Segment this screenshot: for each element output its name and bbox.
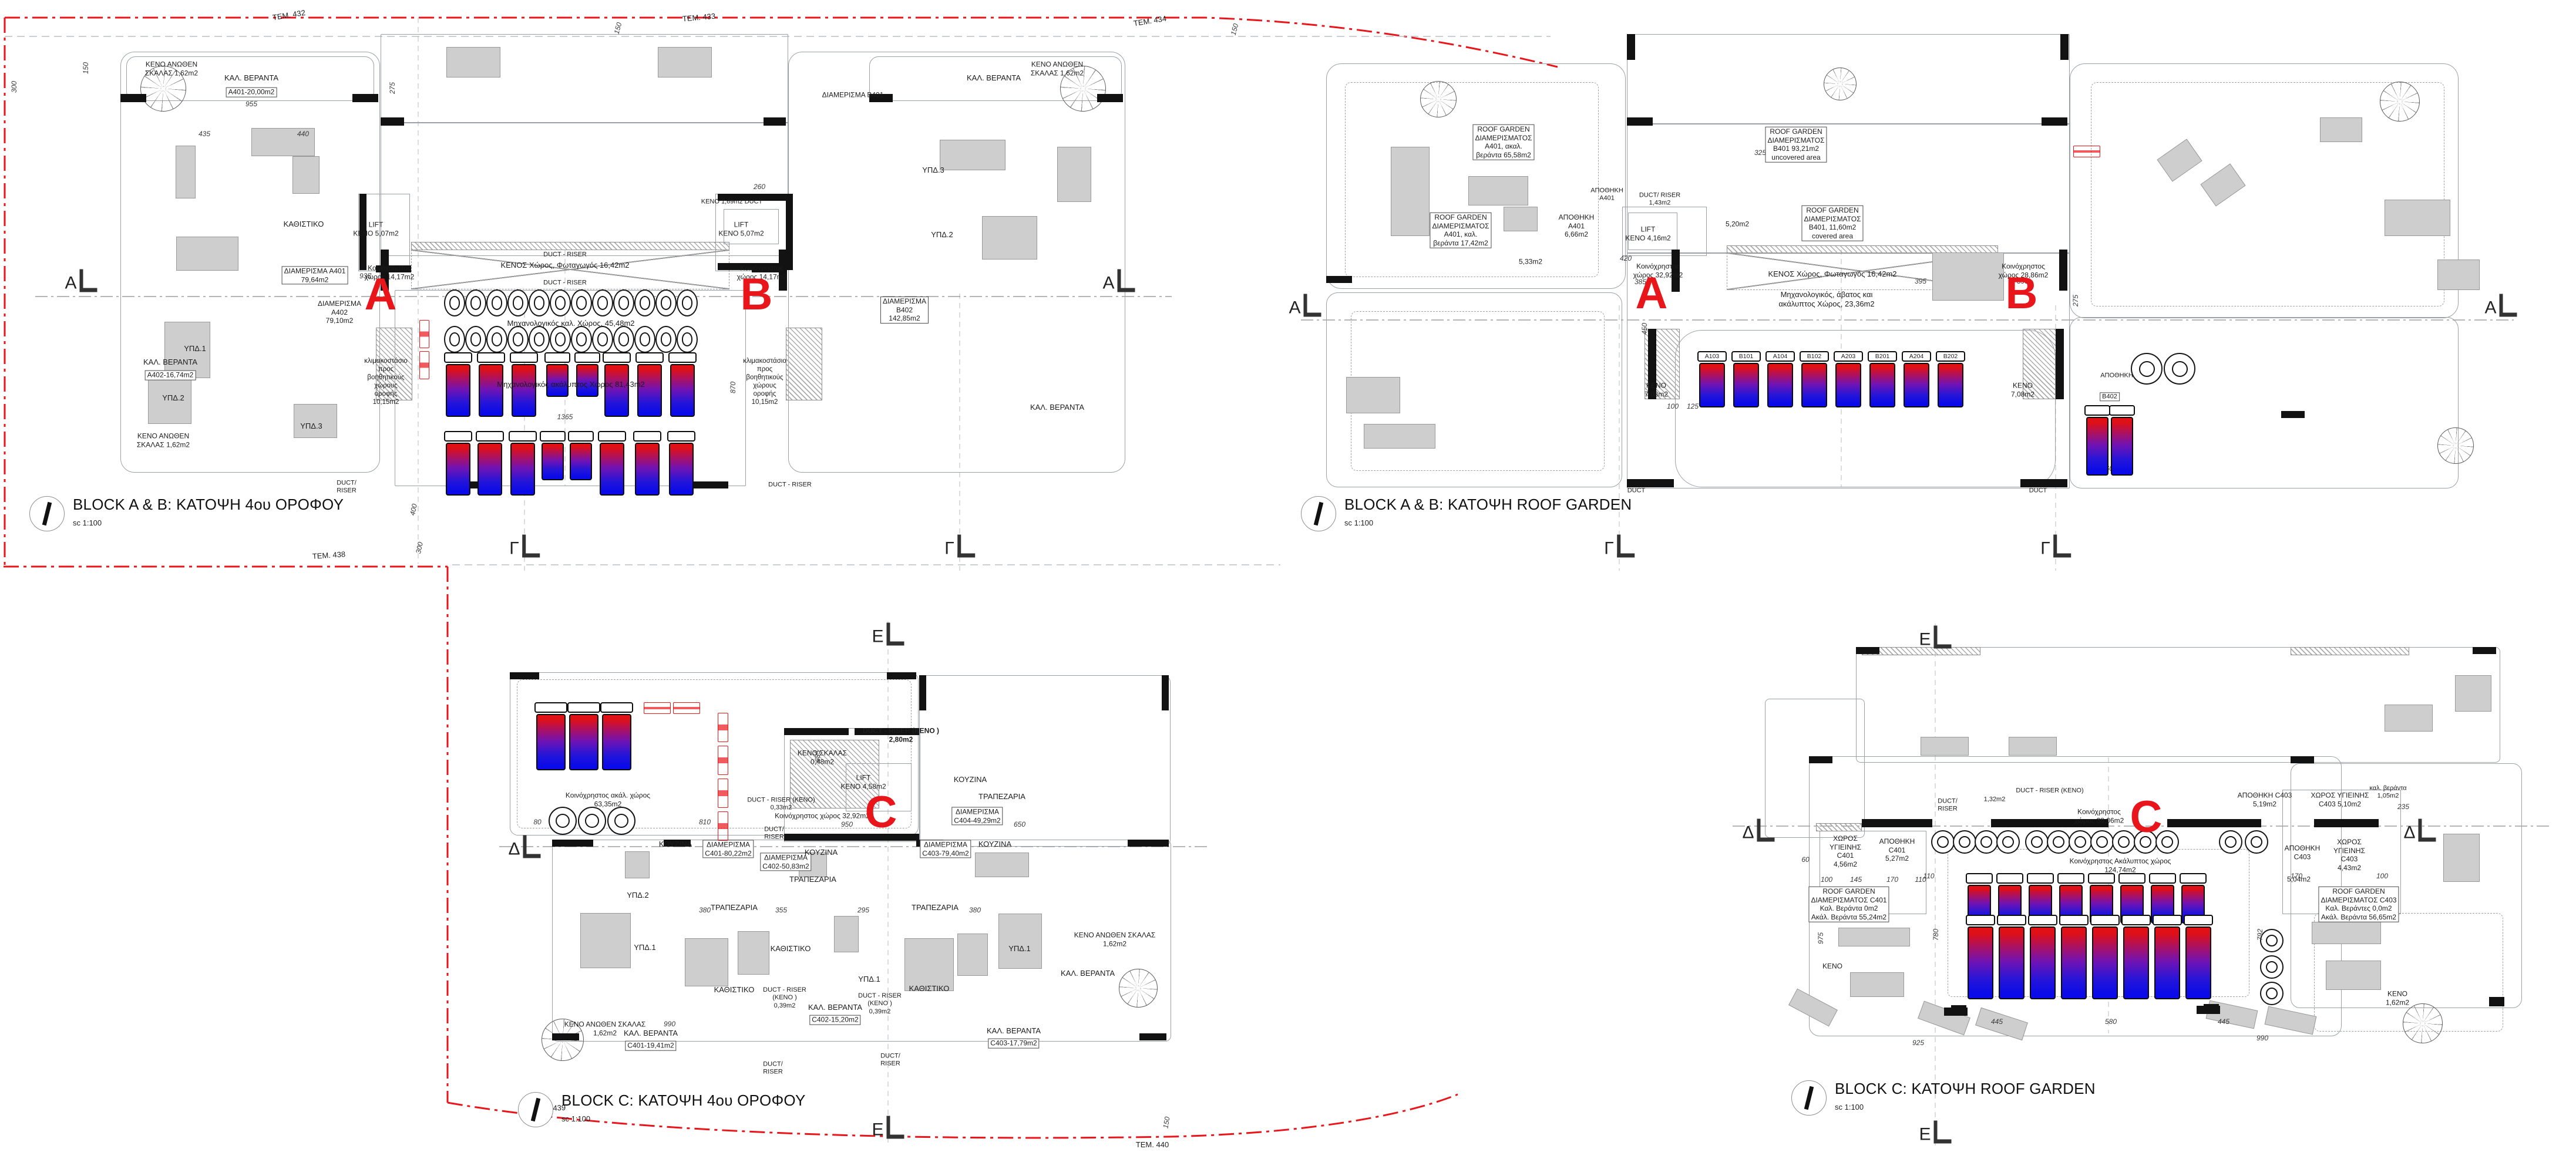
plan-label: ΚΕΝΟ ΑΝΩΘΕΝ ΣΚΑΛΑΣ 1,62m2 <box>1074 931 1156 948</box>
collector-header <box>476 431 504 442</box>
plan-label: ΔΙΑΜΕΡΙΣΜΑ C404-49,29m2 <box>951 807 1003 825</box>
dimension-label: 150 <box>82 62 90 74</box>
plan-label: ROOF GARDEN ΔΙΑΜΕΡΙΣΜΑΤΟΣ A401, καλ. βερ… <box>1430 213 1491 248</box>
plan-scale: sc 1:100 <box>561 1114 806 1123</box>
collector-header <box>633 431 661 442</box>
vent-circle-icon <box>634 289 655 316</box>
vent-circle-icon <box>677 326 698 353</box>
section-marker: Γ <box>1604 535 1635 558</box>
plan-label: ΔΙΑΜΕΡΙΣΜΑ C401-80,22m2 <box>702 840 754 858</box>
grid-letter: C <box>2130 795 2163 840</box>
wall-segment <box>786 194 793 270</box>
plan-label: DUCT/ RISER <box>763 1061 783 1077</box>
section-marker-icon <box>1757 819 1775 842</box>
dimension-label: 60 <box>1801 855 1809 864</box>
vent-inner-icon <box>618 332 630 346</box>
vent-inner-icon <box>1937 836 1949 848</box>
vent-inner-icon <box>2074 836 2087 848</box>
section-marker-letter: Ε <box>1919 1126 1931 1144</box>
plan-label: κλιμακοστάσιο προς βοηθητικούς χώρους ορ… <box>364 357 408 406</box>
furniture <box>1921 737 1969 756</box>
solar-collector <box>576 352 598 397</box>
section-marker-icon <box>2500 294 2517 317</box>
collector-header <box>2057 873 2084 884</box>
hatched-wall <box>411 242 729 250</box>
vent-inner-icon <box>534 332 545 346</box>
collector-panel <box>637 364 662 417</box>
spiral-stair-icon <box>1420 81 1457 117</box>
collector-header <box>574 352 600 363</box>
solar-collector <box>510 431 535 496</box>
vent-circle-icon <box>507 289 529 316</box>
plan-label: ROOF GARDEN ΔΙΑΜΕΡΙΣΜΑΤΟΣ B401, 11,60m2 … <box>1801 205 1863 241</box>
collector-header: A104 <box>1765 351 1795 362</box>
plan-scale: sc 1:100 <box>1835 1103 2096 1111</box>
section-marker-icon <box>1934 1121 1952 1144</box>
dimension-label: 950 <box>841 820 853 828</box>
collector-header <box>567 702 600 713</box>
plan-label: ΚΑΛ. ΒΕΡΑΝΤΑ <box>1061 969 1115 978</box>
collector-header <box>2153 915 2182 925</box>
section-marker-icon <box>957 535 975 558</box>
wall-segment <box>764 117 786 126</box>
furniture <box>292 156 320 194</box>
plan-label: ΚΑΘΙΣΤΙΚΟ <box>771 944 811 954</box>
dimension-label: 780 <box>1932 929 1940 941</box>
furniture <box>975 853 1029 877</box>
solar-collector <box>2092 915 2118 999</box>
dimension-label: 380 <box>699 906 711 914</box>
plan-label: DUCT - RISER (ΚΕΝΟ) <box>2016 787 2083 794</box>
furniture <box>658 47 712 78</box>
vent-circle-icon <box>2069 830 2092 854</box>
furniture <box>1932 252 2004 301</box>
vent-inner-icon <box>576 296 587 309</box>
solar-collector <box>542 431 564 480</box>
red-stamp <box>718 746 728 775</box>
solar-collector <box>2123 915 2149 999</box>
section-marker-icon <box>1934 626 1952 649</box>
solar-collector <box>670 352 695 417</box>
plan-label: ΥΠΔ.2 <box>931 230 953 240</box>
solar-collector <box>2061 915 2087 999</box>
section-marker: Ε <box>1919 1121 1951 1144</box>
section-marker: Α <box>1102 269 1135 292</box>
plan-label: ΥΠΔ.3 <box>922 166 944 175</box>
vent-inner-icon <box>682 332 693 346</box>
section-marker-letter: Γ <box>1604 540 1614 558</box>
section-marker-icon <box>1617 535 1635 558</box>
wall-segment <box>2473 647 2496 654</box>
plan-label: Κοινόχρηστος χώρος 38,06m2 <box>2074 807 2124 824</box>
collector-panel <box>479 364 503 417</box>
section-marker-letter: Γ <box>2040 540 2050 558</box>
dimension-label: 295 <box>857 906 869 914</box>
solar-collector <box>669 431 694 496</box>
plan-label: ΔΙΑΜΕΡΙΣΜΑ B402 142,85m2 <box>880 297 929 324</box>
dimension-label: 300 <box>10 81 18 93</box>
solar-collector <box>546 352 569 397</box>
vent-inner-icon <box>597 296 608 309</box>
building-outline <box>381 34 788 123</box>
plan-label: ΚΕΝΟ ΣΚΑΛΑΣ 0,48m2 <box>798 749 847 766</box>
vent-circle-icon <box>1975 830 1998 854</box>
building-outline <box>1765 699 1865 838</box>
section-marker-icon <box>887 1116 904 1139</box>
plan-label: ΥΠΔ.2 <box>162 393 184 403</box>
collector-header <box>598 431 626 442</box>
dimension-label: 110 <box>1915 875 1926 884</box>
vent-inner-icon <box>2161 836 2174 848</box>
vent-circle-icon <box>2047 830 2070 854</box>
grid-letter: B <box>2006 271 2038 316</box>
plan-label: Μηχανολογικός, άβατος και ακάλυπτος Χώρο… <box>1778 290 1874 309</box>
vent-inner-icon <box>618 296 630 309</box>
vent-circle-icon <box>578 807 606 835</box>
plan-title-block-c-4th: BLOCK C: ΚΑΤΟΨΗ 4ου ΟΡΟΦΟΥ sc 1:100 <box>518 1092 806 1127</box>
furniture <box>1468 176 1528 205</box>
wall-segment <box>1627 479 1674 487</box>
wall-segment <box>2489 997 2504 1006</box>
vent-inner-icon <box>2002 836 2015 848</box>
plan-label: ROOF GARDEN ΔΙΑΜΕΡΙΣΜΑΤΟΣ C401 Καλ. Βερά… <box>1808 887 1889 922</box>
grid-letter: C <box>865 790 897 835</box>
collector-panel <box>569 714 598 770</box>
parcel-label: ΤΕΜ. 440 <box>1136 1140 1169 1150</box>
furniture <box>834 916 859 952</box>
solar-collector <box>2154 915 2180 999</box>
vent-inner-icon <box>2266 935 2278 947</box>
wall-segment <box>919 675 926 710</box>
collector-panel <box>1938 363 1963 407</box>
solar-collector <box>2111 405 2133 476</box>
red-stamp <box>718 811 728 841</box>
solar-collector <box>600 431 624 496</box>
dimension-label: 395 <box>1915 277 1926 285</box>
vent-circle-icon <box>529 326 550 353</box>
section-marker: Α <box>65 269 97 292</box>
plan-label: ΑΠΟΘΗΚΗ C403 5,19m2 <box>2238 791 2292 808</box>
collector-panel <box>2092 926 2118 999</box>
section-marker-letter: Δ <box>2403 824 2415 842</box>
dimension-label: 445 <box>1991 1018 2003 1026</box>
red-stamp <box>644 702 671 714</box>
dimension-label: 380 <box>969 906 981 914</box>
collector-header: B201 <box>1868 351 1897 362</box>
plan-label: ΚΟΥΖΙΝΑ <box>978 840 1011 849</box>
plan-label: ΚΕΝΟ ΑΝΩΘΕΝ ΣΚΑΛΑΣ 1,62m2 <box>137 432 190 449</box>
collector-panel <box>2061 926 2087 999</box>
dimension-label: 990 <box>2256 1034 2268 1042</box>
plan-label: ΚΑΘΙΣΤΙΚΟ <box>714 985 755 995</box>
vent-inner-icon <box>555 296 566 309</box>
dimension-label: 420 <box>1620 254 1632 262</box>
plan-label: ΚΑΛ. ΒΕΡΑΝΤΑ <box>224 73 278 83</box>
plan-label: ΚΕΝΟΣ Χώρος, Φωταγωγός 16,42m2 <box>500 261 629 270</box>
plan-label: ΤΡΑΠΕΖΑΡΙΑ <box>912 903 959 912</box>
collector-panel <box>1869 363 1895 407</box>
collector-header <box>2088 873 2115 884</box>
dimension-label: 990 <box>664 1020 675 1028</box>
section-marker-letter: Ε <box>872 628 883 646</box>
collector-label: A203 <box>1841 353 1856 360</box>
furniture <box>2009 737 2057 756</box>
plan-label: ΑΠΟΘΗΚΗ C401 5,27m2 <box>1879 837 1915 863</box>
hatched-wall <box>1816 823 1862 831</box>
solar-collector: A204 <box>1904 351 1929 407</box>
furniture <box>176 146 196 198</box>
plan-label: DUCT - RISER (ΚΕΝΟ ) 0,39m2 <box>858 992 902 1016</box>
plan-label: ΤΡΑΠΕΖΑΡΙΑ <box>978 792 1025 801</box>
collector-panel <box>2111 417 2133 476</box>
section-marker: Δ <box>2403 819 2436 842</box>
furniture <box>1504 207 1538 231</box>
plan-label: ΧΩΡΟΣ ΥΓΙΕΙΝΗΣ C403 5,10m2 <box>2311 791 2369 808</box>
section-marker-letter: Δ <box>508 841 520 858</box>
solar-collector: A203 <box>1835 351 1861 407</box>
plan-label: ΚΑΛ. ΒΕΡΑΝΤΑ <box>808 1003 862 1012</box>
dimension-label: 100 <box>1667 402 1679 410</box>
solar-collector: B101 <box>1733 351 1759 407</box>
dimension-label: 440 <box>297 130 309 138</box>
collector-panel <box>1733 363 1759 407</box>
plan-label: DUCT - RISER <box>543 251 587 258</box>
vent-inner-icon <box>661 332 672 346</box>
collector-panel <box>1767 363 1793 407</box>
vent-circle-icon <box>465 326 486 353</box>
vent-circle-icon <box>486 289 507 316</box>
vent-circle-icon <box>2245 830 2268 854</box>
collector-panel <box>604 364 629 417</box>
vent-circle-icon <box>549 807 577 835</box>
plan-label: ΧΩΡΟΣ ΥΓΙΕΙΝΗΣ C401 4,56m2 <box>1830 834 1861 869</box>
plan-label: ΔΙΑΜΕΡΙΣΜΑ A402 79,10m2 <box>318 299 361 325</box>
plan-title-block-c-roof: BLOCK C: ΚΑΤΟΨΗ ROOF GARDEN sc 1:100 <box>1791 1080 2096 1116</box>
wall-segment <box>2167 819 2261 827</box>
plan-label: ΚΕΝΟ ΑΝΩΘΕΝ ΣΚΑΛΑΣ 1,62m2 <box>1031 60 1084 77</box>
collector-panel <box>570 443 592 480</box>
collector-label: A104 <box>1773 353 1788 360</box>
collector-header <box>2118 873 2145 884</box>
plan-label: DUCT <box>1627 487 1646 494</box>
vent-circle-icon <box>2131 353 2163 385</box>
furniture <box>2320 117 2362 142</box>
collector-panel <box>1968 926 1993 999</box>
wall-segment <box>1162 675 1169 710</box>
vent-inner-icon <box>2266 961 2278 973</box>
red-stamp <box>2073 146 2100 157</box>
collector-header <box>2090 915 2120 925</box>
collector-header <box>444 352 472 363</box>
vent-inner-icon <box>513 332 524 346</box>
title-marker-icon <box>29 496 65 531</box>
plan-label: ΚΟΥΖΙΝΑ <box>659 840 692 849</box>
collector-header <box>667 431 695 442</box>
wall-segment <box>2204 1004 2219 1013</box>
section-marker: Ε <box>872 1116 904 1139</box>
collector-panel <box>510 443 535 496</box>
vent-circle-icon <box>2164 353 2195 385</box>
vent-inner-icon <box>682 296 693 309</box>
furniture <box>2443 834 2480 882</box>
plan-label: ΚΟΥΖΙΝΑ <box>954 775 987 784</box>
furniture <box>982 216 1037 260</box>
furniture <box>446 47 500 78</box>
plan-label: ΤΡΑΠΕΖΑΡΙΑ <box>711 903 758 912</box>
furniture <box>1850 972 1904 997</box>
drawing-sheet: BLOCK A & B: ΚΑΤΟΨΗ 4ου ΟΡΟΦΟΥ sc 1:100 … <box>0 0 2576 1159</box>
collector-header <box>2180 873 2207 884</box>
section-marker: Γ <box>944 535 975 558</box>
plan-label: ΥΠΔ.3 <box>300 422 322 431</box>
furniture <box>176 237 238 271</box>
dimension-label: 355 <box>775 906 787 914</box>
wall-segment <box>2281 411 2305 418</box>
vent-inner-icon <box>2053 836 2065 848</box>
furniture <box>625 851 650 878</box>
dimension-label: 80 <box>533 818 541 826</box>
plan-label: Κοινόχρηστος χώρος 32,92m2 <box>775 812 870 821</box>
collector-header <box>1966 873 1993 884</box>
plan-label: 1,32m2 <box>1984 796 2006 803</box>
plan-label: ΚΕΝΟ ΑΝΩΘΕΝ ΣΚΑΛΑΣ 1,62m2 <box>145 60 198 77</box>
wall-segment <box>120 94 146 102</box>
wall-segment <box>2060 34 2069 60</box>
section-marker-letter: Ε <box>872 1121 883 1139</box>
wall-segment <box>2020 479 2067 487</box>
collector-header <box>2109 405 2135 416</box>
solar-collector: B201 <box>1869 351 1895 407</box>
collector-label: A103 <box>1705 353 1720 360</box>
section-marker-letter: Α <box>65 275 76 292</box>
wall-segment <box>1951 1005 1966 1015</box>
spiral-stair-icon <box>2380 82 2420 122</box>
dimension-label: 810 <box>699 818 711 826</box>
section-marker: Γ <box>509 535 540 558</box>
dimension-label: 125 <box>1687 402 1699 410</box>
plan-label: DUCT/ RISER <box>1938 798 1958 814</box>
vent-circle-icon <box>1953 830 1976 854</box>
furniture <box>1838 928 1910 946</box>
plan-label: Μηχανολογικός ακάλυπτος Χώρος 81,43m2 <box>497 380 645 389</box>
plan-label: ΤΡΑΠΕΖΑΡΙΑ <box>789 875 836 884</box>
vent-circle-icon <box>655 289 677 316</box>
plan-label: A401-20,00m2 <box>226 87 277 97</box>
collector-header <box>603 352 631 363</box>
dimension-label: 435 <box>199 130 210 138</box>
collector-panel <box>446 443 470 496</box>
vent-circle-icon <box>486 326 507 353</box>
wall-segment <box>1326 276 1352 283</box>
section-marker-icon <box>887 623 904 646</box>
vent-circle-icon <box>607 807 635 835</box>
plan-label: DUCT/ RISER <box>880 1053 900 1069</box>
collector-panel <box>1904 363 1929 407</box>
vent-circle-icon <box>613 289 634 316</box>
plan-label: ΑΠΟΘΗΚΗ A401 6,66m2 <box>1559 213 1595 239</box>
vent-circle-icon <box>550 326 571 353</box>
collector-panel <box>600 443 624 496</box>
title-marker-icon <box>1301 496 1336 531</box>
dimension-label: 1365 <box>557 413 573 421</box>
plan-title-block-ab-4th: BLOCK A & B: ΚΑΤΟΨΗ 4ου ΟΡΟΦΟΥ sc 1:100 <box>29 496 344 531</box>
plan-label: ΑΠΟΘΗΚΗ A401 <box>1590 187 1623 203</box>
plan-title: BLOCK C: ΚΑΤΟΨΗ ROOF GARDEN <box>1835 1080 2096 1097</box>
dimension-label: 235 <box>2397 803 2409 811</box>
vent-circle-icon <box>550 289 571 316</box>
section-marker: Ε <box>872 623 904 646</box>
vent-inner-icon <box>2031 836 2043 848</box>
plan-label: ΚΕΝΟ <box>1822 962 1842 971</box>
plan-label: DUCT/ RISER <box>337 480 357 496</box>
wall-segment <box>2314 819 2379 827</box>
section-marker: Α <box>2484 294 2517 317</box>
plan-scale: sc 1:100 <box>1344 518 1632 527</box>
plan-label: B402 <box>2100 392 2120 401</box>
dimension-label: 650 <box>1014 820 1025 828</box>
collector-header <box>2084 405 2110 416</box>
plan-label: DUCT - RISER (ΚΕΝΟ) 0,33m2 <box>747 797 815 813</box>
plan-label: ΚΕΝΟ 1,69m2 DUCT <box>701 198 763 205</box>
furniture <box>2385 705 2433 732</box>
wall-segment <box>1856 647 1879 654</box>
section-marker: Γ <box>2040 535 2071 558</box>
section-marker-letter: Α <box>1102 275 1114 292</box>
wall-segment <box>352 94 378 102</box>
plan-label: DUCT - RISER <box>543 279 587 287</box>
collector-panel <box>512 364 536 417</box>
vent-inner-icon <box>470 332 482 346</box>
furniture <box>685 938 728 986</box>
collector-panel <box>1999 926 2025 999</box>
plan-label: ΚΑΛ. ΒΕΡΑΝΤΑ <box>967 73 1021 83</box>
plan-label: 5,04m2 <box>2287 875 2311 884</box>
furniture <box>998 914 1042 969</box>
plan-label: καλ. βεράντα 1,05m2 <box>2369 785 2406 801</box>
vent-inner-icon <box>661 296 672 309</box>
dimension-label: 275 <box>2071 295 2080 306</box>
plan-label: LIFT ΚΕΝΟ 5,07m2 <box>718 220 764 237</box>
solar-collector <box>602 702 631 770</box>
section-marker-icon <box>1304 294 1321 317</box>
vent-circle-icon <box>465 289 486 316</box>
spiral-stair-icon <box>2403 1003 2443 1043</box>
plan-label: ΔΙΑΜΕΡΙΣΜΑ C402-50,83m2 <box>760 853 811 871</box>
plan-title: BLOCK A & B: ΚΑΤΟΨΗ ROOF GARDEN <box>1344 496 1632 513</box>
plan-label: DUCT - RISER <box>768 481 812 488</box>
plan-label: ΑΠΟΘΗΚΗ C403 <box>2285 844 2321 861</box>
plan-label: Μηχανολογικός καλ. Χώρος, 45,48m2 <box>507 319 634 328</box>
spiral-stair-icon <box>2437 427 2474 464</box>
vent-circle-icon <box>2090 830 2114 854</box>
solar-collector <box>446 352 470 417</box>
plan-label: ΚΕΝΟΣ Χώρος, Φωταγωγός 16,42m2 <box>1768 269 1896 279</box>
grid-letter: B <box>741 272 773 317</box>
vent-inner-icon <box>640 296 651 309</box>
collector-header <box>2027 873 2054 884</box>
vent-circle-icon <box>444 289 465 316</box>
collector-panel <box>2030 926 2056 999</box>
section-marker-icon <box>522 535 540 558</box>
plan-label: Κοινόχρηστος ακάλ. χώρος 63,35m2 <box>566 791 650 808</box>
section-marker-icon <box>523 835 541 858</box>
collector-panel <box>670 364 695 417</box>
plan-label: ΥΠΔ.2 <box>627 891 649 900</box>
wall-segment <box>784 728 849 735</box>
wall-segment <box>1862 819 1932 827</box>
title-marker-icon <box>518 1092 553 1127</box>
plan-title: BLOCK C: ΚΑΤΟΨΗ 4ου ΟΡΟΦΟΥ <box>561 1092 806 1109</box>
